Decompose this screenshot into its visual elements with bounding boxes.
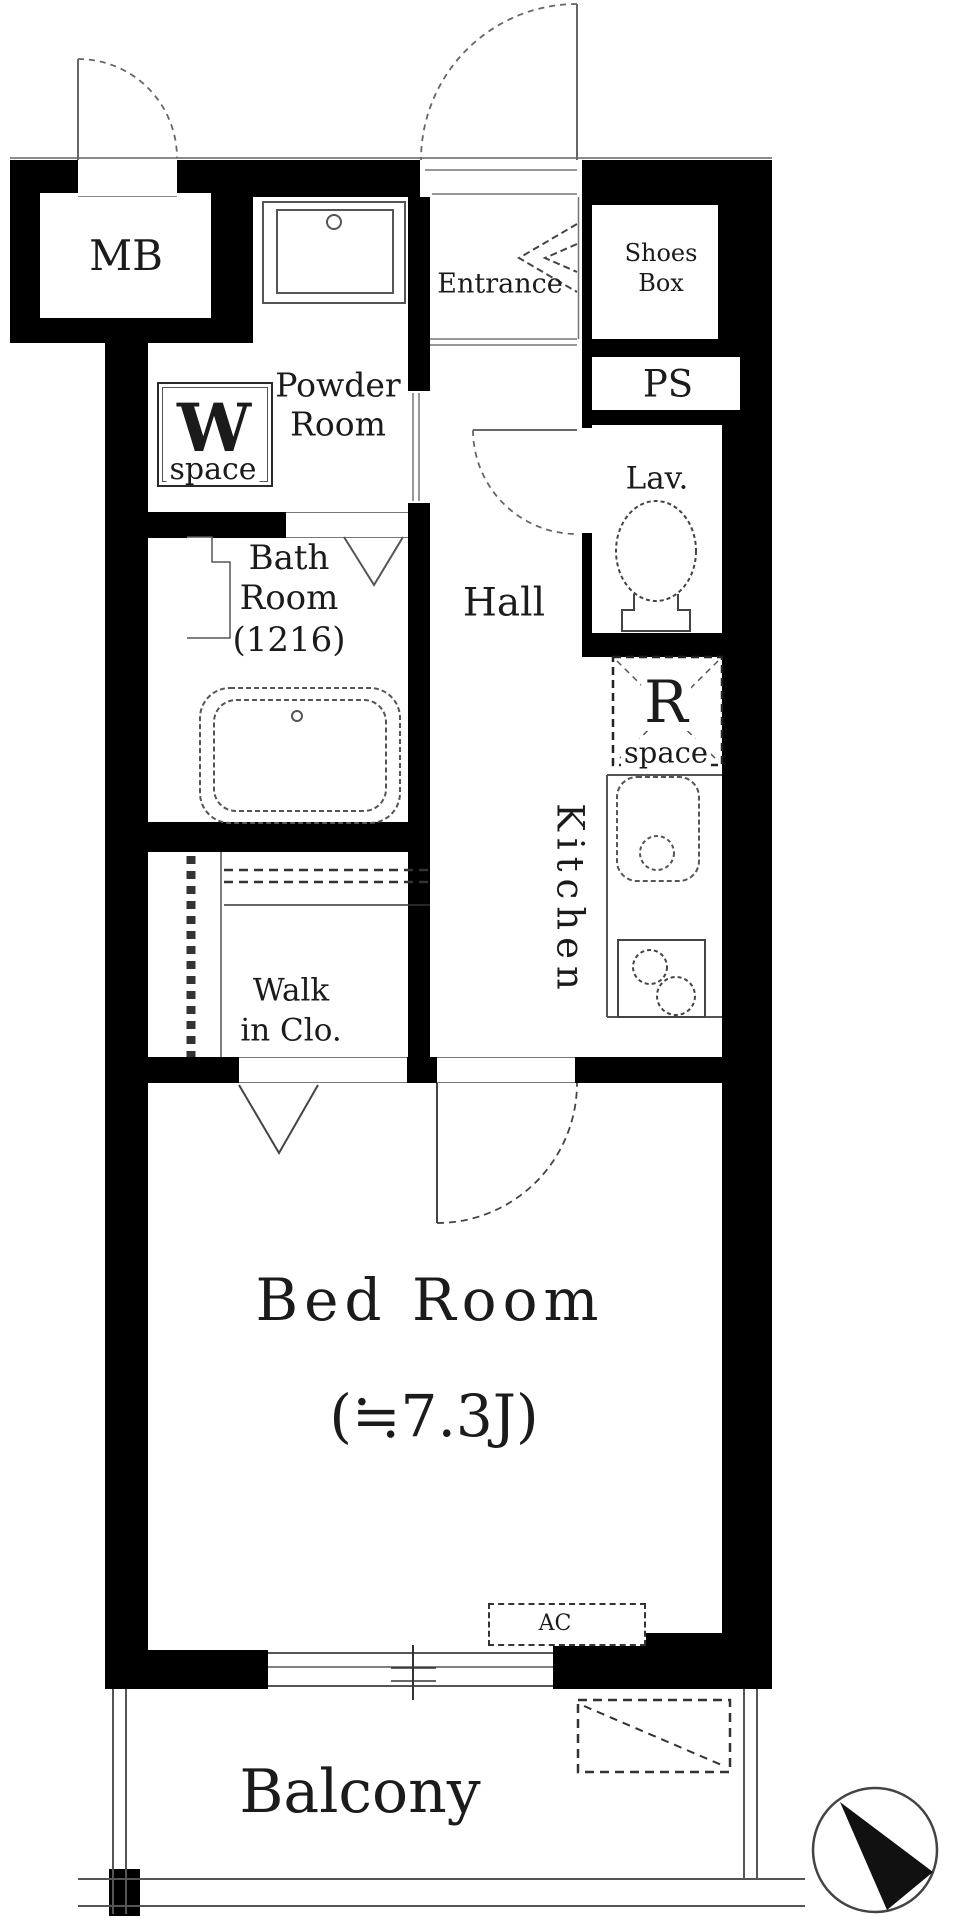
bathtub-icon	[200, 688, 400, 823]
kitchen-sink-icon	[617, 777, 699, 881]
room-label-bedroom-line2: (≒7.3J)	[329, 1387, 538, 1445]
room-label-ps: PS	[643, 366, 693, 403]
room-lav	[592, 425, 722, 633]
wall-center-vertical	[408, 197, 430, 1083]
opening-entrance-door	[420, 160, 582, 197]
room-label-shoes-line2: Box	[638, 271, 684, 295]
wall-left	[105, 343, 148, 1689]
room-label-hall: Hall	[463, 584, 545, 623]
room-label-wic-line1: Walk	[253, 976, 329, 1007]
room-label-bath-line2: Room	[240, 581, 339, 615]
room-label-bath-line3: (1216)	[232, 623, 345, 657]
kitchen-counter	[607, 775, 722, 1017]
closet-folding-door-icon	[239, 1085, 318, 1153]
floor-plan: MB Powder Room W space Entrance Shoes Bo…	[0, 0, 960, 1927]
opening-closet-door	[239, 1057, 407, 1083]
room-label-balcony: Balcony	[239, 1762, 480, 1822]
balcony-equipment-box	[578, 1700, 730, 1772]
room-label-bedroom-line1: Bed Room	[255, 1271, 604, 1329]
room-label-bath-line1: Bath	[249, 541, 330, 575]
room-label-entrance: Entrance	[437, 271, 562, 298]
room-label-powder-line1: Powder	[275, 369, 400, 402]
room-label-mb: MB	[89, 235, 163, 277]
opening-lav-door	[577, 428, 603, 533]
compass-icon	[813, 1788, 937, 1912]
room-label-wic-line2: in Clo.	[240, 1016, 341, 1047]
washbasin-icon	[263, 202, 405, 303]
window-bedroom	[268, 1650, 553, 1689]
washer-space-text: space	[166, 455, 259, 485]
refrigerator-space-initial: R	[641, 673, 691, 731]
lav-door-icon	[473, 430, 577, 534]
opening-bedroom-door	[437, 1057, 575, 1083]
opening-powder-sliding-door	[408, 391, 430, 503]
wall-bedroom-bottom-left	[105, 1650, 268, 1689]
bath-folding-door-icon	[344, 537, 403, 585]
stove-icon	[618, 940, 705, 1017]
mb-door-icon	[78, 59, 177, 160]
ac-unit-label: AC	[539, 1613, 572, 1635]
wall-bath-closet	[148, 822, 430, 852]
bath-ledge	[187, 537, 230, 638]
room-label-kitchen: Kitchen	[552, 803, 589, 997]
wall-outer-edge-line	[10, 157, 772, 159]
room-label-powder-line2: Room	[290, 408, 386, 441]
bedroom-door-icon	[437, 1083, 577, 1223]
opening-mb-door	[78, 160, 177, 197]
refrigerator-space-text: space	[621, 739, 711, 768]
wall-balcony-post	[109, 1869, 140, 1916]
room-label-shoes-line1: Shoes	[625, 241, 698, 265]
room-label-lav: Lav.	[626, 464, 689, 495]
opening-bath-door	[286, 512, 408, 538]
